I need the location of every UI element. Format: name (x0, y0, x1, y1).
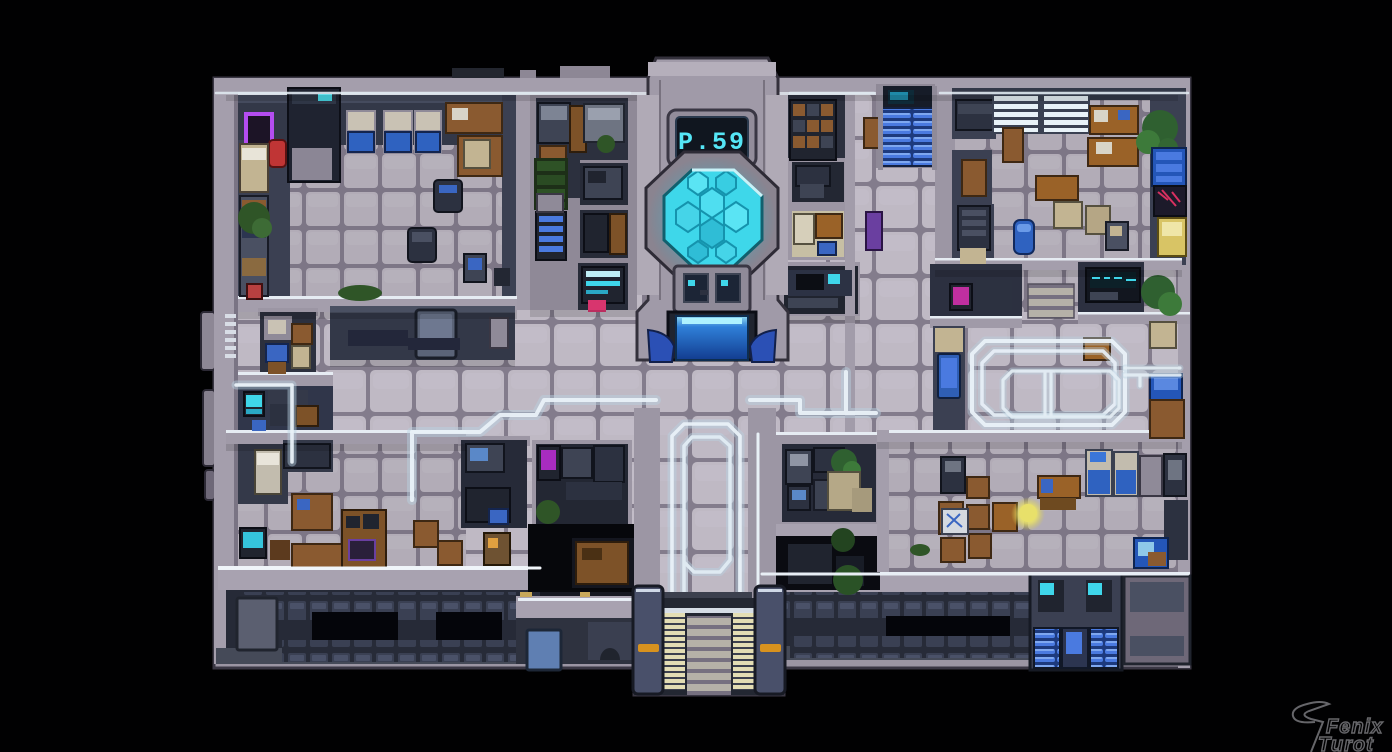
svg-text:Turot: Turot (1318, 734, 1374, 752)
